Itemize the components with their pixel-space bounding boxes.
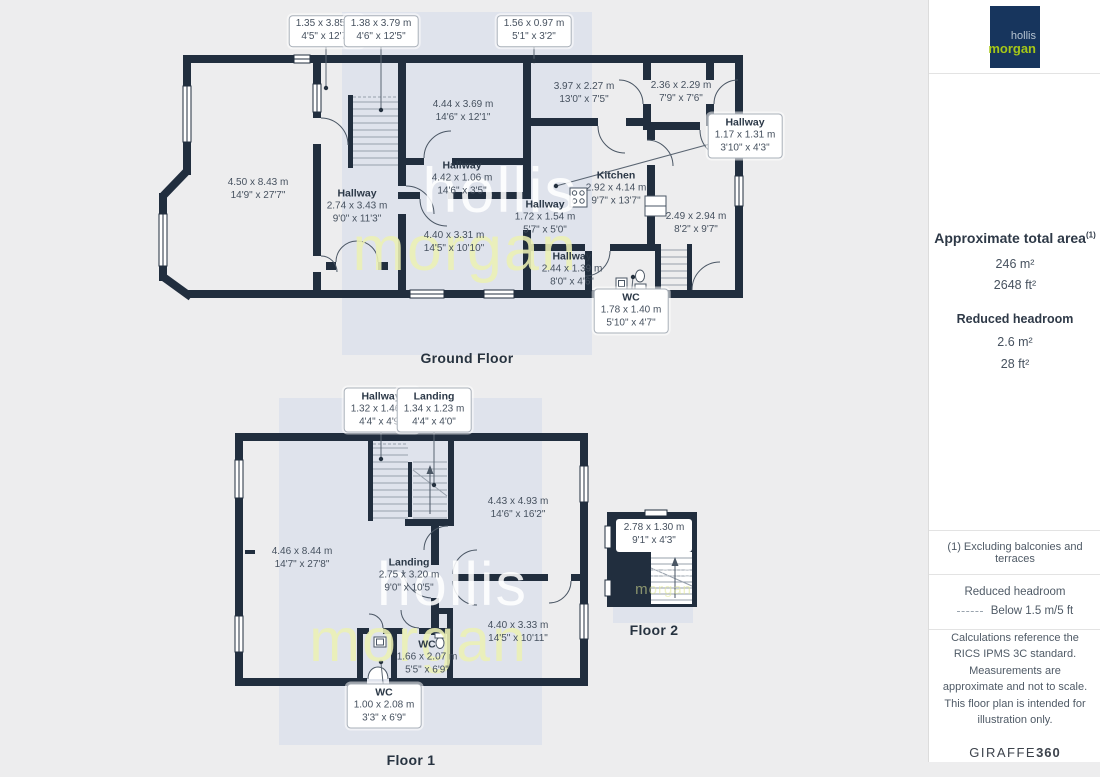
total-area-heading: Approximate total area(1) (934, 230, 1096, 246)
area-summary-section: Approximate total area(1) 246 m² 2648 ft… (929, 74, 1100, 531)
hallway-label: Hallway 2.44 x 1.39 m8'0" x 4'6" (542, 250, 603, 289)
giraffe360-logo: GIRAFFE360 (969, 743, 1061, 763)
room-label: 2.49 x 2.94 m8'2" x 9'7" (666, 211, 727, 237)
floor1-title: Floor 1 (387, 752, 436, 768)
floor2-title: Floor 2 (630, 622, 679, 638)
room-label: 2.36 x 2.29 m7'9" x 7'6" (651, 80, 712, 106)
legend-title: Reduced headroom (964, 586, 1065, 598)
ground-floor-bay-walls (162, 171, 191, 297)
logo-text-morgan: morgan (988, 42, 1036, 56)
room-label-main: 4.46 x 8.44 m14'7" x 27'8" (272, 546, 333, 572)
disclaimer-section: Calculations reference the RICS IPMS 3C … (929, 630, 1100, 763)
kitchen-label: Kitchen 2.92 x 4.14 m9'7" x 13'7" (586, 169, 647, 208)
dimension-label: 1.56 x 0.97 m5'1" x 3'2" (497, 15, 572, 47)
room-label: 2.78 x 1.30 m9'1" x 4'3" (624, 522, 685, 548)
logo-section: hollis morgan (929, 0, 1100, 74)
dashed-line-icon (957, 611, 983, 612)
total-area-imperial: 2648 ft² (994, 275, 1036, 296)
dimension-label: 1.38 x 3.79 m4'6" x 12'5" (344, 15, 419, 47)
floor-plan-canvas: hollis morgan hollis morgan hollis morga… (0, 0, 1100, 777)
footnote-marker: (1) (1086, 230, 1096, 239)
ground-floor-title: Ground Floor (420, 350, 513, 366)
hallway-label: Hallway 4.42 x 1.06 m14'6" x 3'5" (432, 159, 493, 198)
legend-section: Reduced headroom Below 1.5 m/5 ft (929, 575, 1100, 629)
hollis-morgan-logo: hollis morgan (990, 6, 1040, 68)
landing-label-boxed: Landing 1.34 x 1.23 m4'4" x 4'0" (397, 387, 472, 432)
hallway-label: Hallway 1.72 x 1.54 m5'7" x 5'0" (515, 198, 576, 237)
info-sidebar: hollis morgan Approximate total area(1) … (928, 0, 1100, 762)
toilet-icon (635, 270, 646, 289)
hallway-label-boxed: Hallway 1.17 x 1.31 m3'10" x 4'3" (708, 113, 783, 158)
wc-label-boxed: WC 1.78 x 1.40 m5'10" x 4'7" (594, 288, 669, 333)
total-area-metric: 246 m² (996, 254, 1035, 275)
room-label: 4.44 x 3.69 m14'6" x 12'1" (433, 99, 494, 125)
kitchen-counter-icon (645, 196, 666, 216)
wc-label: WC 1.66 x 2.07 m5'5" x 6'9" (397, 638, 458, 677)
footnote: (1) Excluding balconies and terraces (929, 531, 1100, 575)
reduced-headroom-metric: 2.6 m² (997, 332, 1032, 353)
sink-icon (616, 278, 627, 289)
room-label: 4.43 x 4.93 m14'6" x 16'2" (488, 496, 549, 522)
room-label: 4.40 x 3.33 m14'5" x 10'11" (488, 620, 549, 646)
hallway-label: Hallway 2.74 x 3.43 m9'0" x 11'3" (327, 187, 388, 226)
watermark-floor2: hollis morgan (635, 565, 692, 598)
room-label: 3.97 x 2.27 m13'0" x 7'5" (554, 81, 615, 107)
ground-floor-rear-stairs (661, 250, 687, 285)
wc-label-boxed: WC 1.00 x 2.08 m3'3" x 6'9" (347, 683, 422, 728)
reduced-headroom-imperial: 28 ft² (1001, 354, 1030, 375)
reduced-headroom-heading: Reduced headroom (957, 312, 1074, 326)
floor2-backdrop (613, 607, 693, 623)
disclaimer-text: Calculations reference the RICS IPMS 3C … (942, 630, 1088, 729)
landing-label: Landing 2.75 x 3.20 m9'0" x 10'5" (379, 556, 440, 595)
room-label: 4.40 x 3.31 m14'5" x 10'10" (424, 230, 485, 256)
legend-value: Below 1.5 m/5 ft (991, 605, 1073, 617)
room-label-main: 4.50 x 8.43 m14'9" x 27'7" (228, 177, 289, 203)
